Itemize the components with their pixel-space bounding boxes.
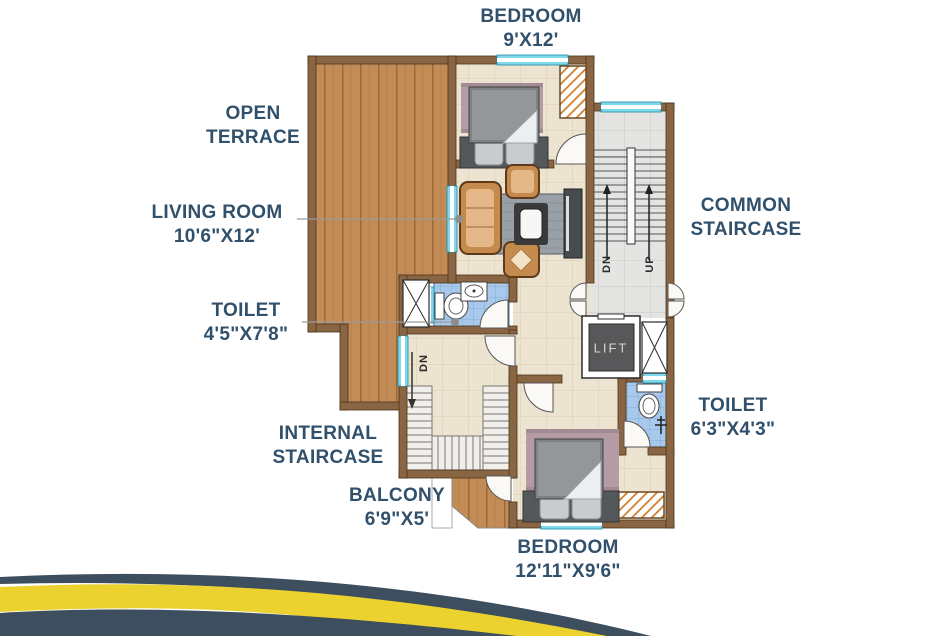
duct-shaft	[403, 280, 429, 327]
label-open-terrace: OPENTERRACE	[143, 102, 363, 150]
window	[643, 373, 666, 383]
marking-internal-down: DN	[418, 354, 430, 372]
bed-top	[460, 83, 548, 168]
label-living-room: LIVING ROOM10'6"X12'	[107, 201, 327, 249]
wc-tank	[435, 293, 444, 319]
marking-stair-up: UP	[644, 255, 656, 272]
pillow	[475, 140, 503, 165]
duct-shaft	[642, 322, 667, 373]
wardrobe-icon	[560, 66, 586, 118]
label-balcony: BALCONY6'9"X5'	[287, 484, 507, 532]
label-internal-staircase: INTERNALSTAIRCASE	[218, 422, 438, 470]
pillow	[506, 140, 534, 165]
bed-bottom	[523, 429, 619, 522]
window	[497, 55, 568, 65]
marking-stair-down: DN	[601, 255, 613, 273]
label-common-staircase: COMMONSTAIRCASE	[636, 194, 856, 242]
label-bedroom-bottom: BEDROOM12'11"X9'6"	[458, 536, 678, 584]
floor-plan-page: BEDROOM9'X12' OPENTERRACE LIVING ROOM10'…	[0, 0, 948, 636]
label-toilet-small: TOILET4'5"X7'8"	[136, 299, 356, 347]
label-bedroom-top: BEDROOM9'X12'	[421, 5, 641, 53]
marking-lift: LIFT	[594, 341, 629, 356]
wc-tank	[637, 384, 662, 392]
window	[398, 336, 408, 386]
window	[601, 102, 661, 112]
label-toilet-attached: TOILET6'3"X4'3"	[623, 394, 843, 442]
